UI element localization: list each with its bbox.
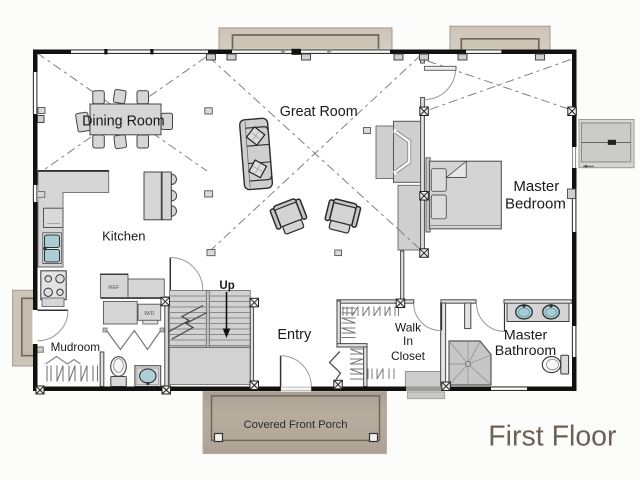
svg-text:W/D: W/D — [144, 311, 154, 317]
svg-text:Bedroom: Bedroom — [505, 196, 566, 213]
svg-text:Bathroom: Bathroom — [495, 343, 557, 359]
svg-text:Master: Master — [504, 328, 548, 344]
svg-text:Kitchen: Kitchen — [102, 229, 145, 244]
svg-text:Closet: Closet — [391, 349, 426, 363]
svg-text:Master: Master — [513, 178, 559, 195]
svg-text:Walk: Walk — [395, 320, 422, 334]
svg-text:Dining Room: Dining Room — [82, 113, 165, 129]
svg-text:Up: Up — [219, 280, 234, 292]
svg-text:Great Room: Great Room — [280, 104, 358, 120]
svg-text:REF: REF — [108, 285, 120, 291]
svg-text:Entry: Entry — [277, 327, 312, 343]
svg-text:Mudroom: Mudroom — [51, 341, 100, 354]
svg-text:First Floor: First Floor — [488, 421, 617, 453]
svg-text:In: In — [403, 334, 413, 348]
svg-text:Covered Front Porch: Covered Front Porch — [244, 419, 348, 431]
